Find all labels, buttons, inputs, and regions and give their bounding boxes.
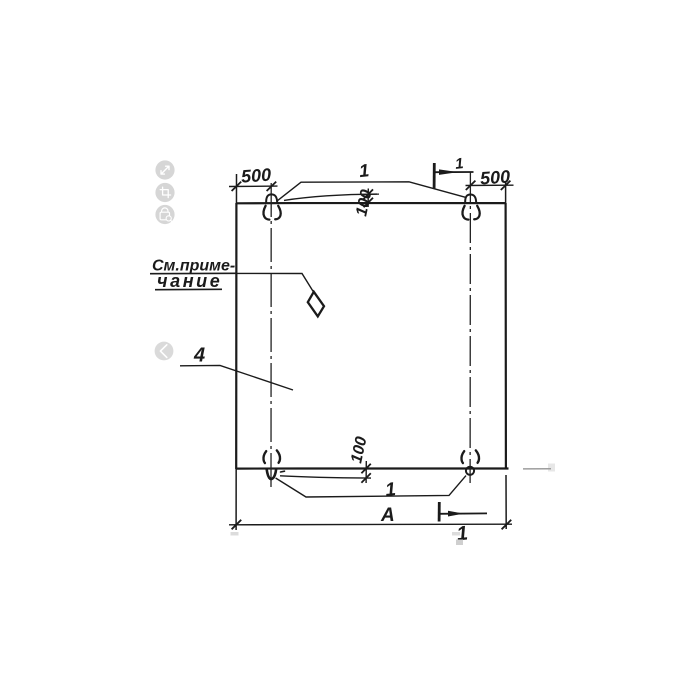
svg-text:1: 1 [454,155,464,173]
svg-text:500: 500 [479,166,510,188]
svg-text:1: 1 [384,479,397,501]
svg-text:1: 1 [358,160,370,181]
svg-text:A: A [380,505,395,526]
svg-text:4: 4 [193,345,205,367]
svg-text:500: 500 [240,165,271,187]
